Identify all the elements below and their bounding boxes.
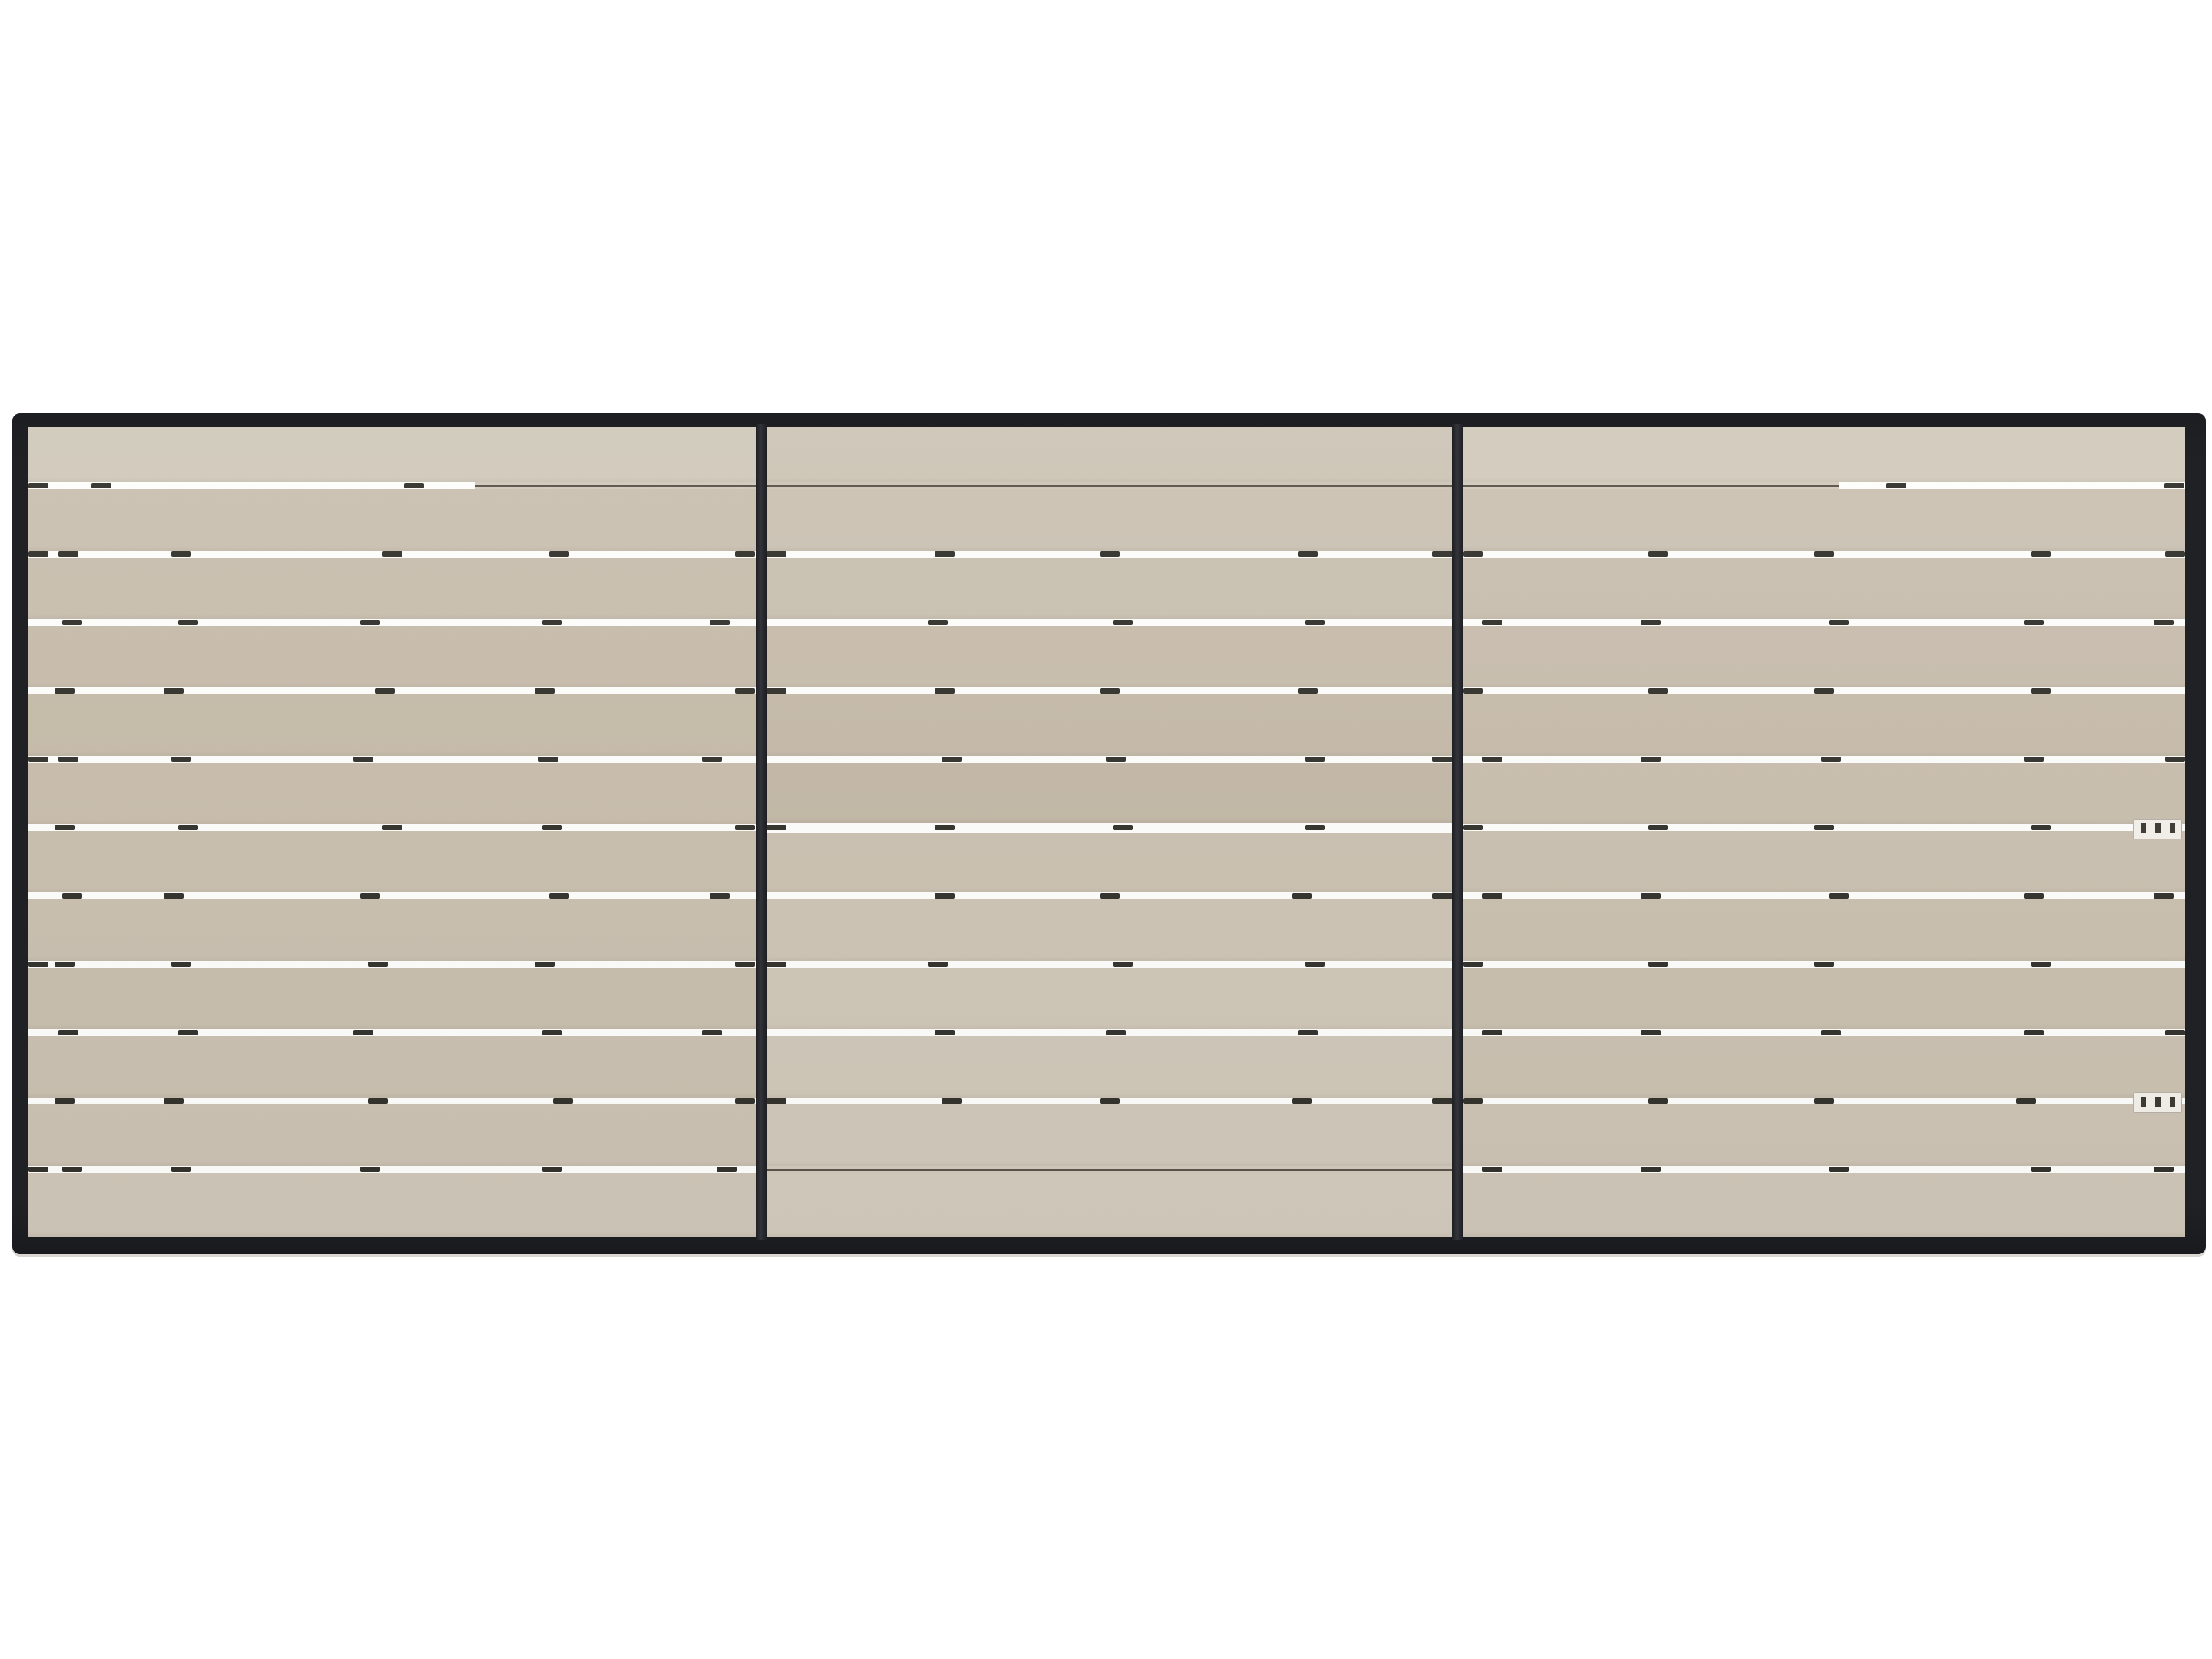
slat-clip — [1648, 551, 1668, 557]
slat-clip — [171, 551, 191, 557]
slat-clip — [58, 757, 78, 762]
slat — [1463, 694, 2185, 756]
slat-clip — [717, 1167, 737, 1172]
slat-clip — [1292, 1098, 1312, 1104]
slat-clip — [58, 551, 78, 557]
slat-clip — [2024, 620, 2044, 625]
table-panel-left — [28, 427, 756, 1237]
slat-clip — [767, 962, 786, 967]
slat — [1463, 626, 2185, 687]
slat-clip — [735, 825, 755, 830]
slat-clip — [1482, 1030, 1502, 1035]
slat-clip — [1463, 688, 1483, 694]
slat-clip — [1463, 1098, 1483, 1104]
slat-clip — [767, 825, 786, 830]
slat-clip — [1298, 1030, 1318, 1035]
seam-line — [1463, 485, 1839, 487]
slat-clip — [535, 688, 555, 694]
slat — [767, 833, 1452, 892]
slat-seam — [1463, 482, 1839, 489]
slat-clip — [178, 1030, 198, 1035]
slat-clip — [55, 1098, 75, 1104]
latch-mark — [2155, 1097, 2161, 1107]
slat-clip — [1648, 825, 1668, 830]
slat — [1463, 968, 2185, 1029]
slat-clip — [1305, 757, 1325, 762]
slat-clip — [710, 893, 730, 899]
slat-clip — [1482, 620, 1502, 625]
slat-clip — [2024, 893, 2044, 899]
slat-clip — [1463, 551, 1483, 557]
slat-clip — [2024, 757, 2044, 762]
slat-clip — [178, 620, 198, 625]
slat — [28, 694, 756, 756]
slat-seam — [767, 482, 1452, 489]
slat-clip — [62, 893, 82, 899]
slat-clip — [375, 688, 395, 694]
slat-clip — [1292, 893, 1312, 899]
slat-clip — [55, 688, 75, 694]
slat — [1463, 831, 2185, 892]
slat-clip — [2165, 1030, 2185, 1035]
slat — [28, 626, 756, 687]
slat — [1463, 1036, 2185, 1098]
slat-clip — [1482, 757, 1502, 762]
slat-clip — [353, 1030, 373, 1035]
slat-clip — [1648, 688, 1668, 694]
slat-clip — [55, 825, 75, 830]
slat-clip — [1648, 962, 1668, 967]
slat-clip — [1305, 962, 1325, 967]
slat-clip — [1482, 893, 1502, 899]
slat-clip — [928, 962, 948, 967]
seam-line — [475, 485, 756, 487]
slat-clip — [702, 1030, 722, 1035]
latch-mark — [2155, 823, 2161, 833]
slat-clip — [1648, 1098, 1668, 1104]
slat — [28, 763, 756, 824]
slat-clip — [28, 962, 48, 967]
slat-clip — [171, 962, 191, 967]
slat-clip — [1432, 551, 1452, 557]
table-panel-right — [1463, 427, 2185, 1237]
slat-clip — [178, 825, 198, 830]
slat — [28, 489, 756, 551]
slat — [767, 558, 1452, 619]
slat-clip — [935, 688, 955, 694]
slat — [28, 427, 756, 482]
slat-clip — [1482, 1167, 1502, 1172]
latch-mark — [2170, 1097, 2175, 1107]
table-panel-middle — [767, 427, 1452, 1237]
slat-clip — [935, 893, 955, 899]
slat-clip — [1641, 1167, 1661, 1172]
slat-clip — [2154, 893, 2174, 899]
slat-clip — [2154, 1167, 2174, 1172]
slat-clip — [710, 620, 730, 625]
slat-clip — [1432, 893, 1452, 899]
slat-clip — [549, 551, 569, 557]
slat-clip — [2164, 483, 2184, 488]
slat — [767, 1036, 1452, 1098]
slat-clip — [368, 1098, 388, 1104]
slat — [28, 968, 756, 1029]
slat-clip — [1829, 1167, 1849, 1172]
slat — [1463, 489, 2185, 551]
slat-clip — [91, 483, 111, 488]
slat-clip — [28, 1167, 48, 1172]
slat-clip — [767, 551, 786, 557]
slat-clip — [928, 620, 948, 625]
slat — [767, 1173, 1452, 1237]
slat-clip — [62, 1167, 82, 1172]
slat — [28, 558, 756, 619]
slat-clip — [2016, 1098, 2036, 1104]
slat-clip — [538, 757, 558, 762]
slat-clip — [542, 825, 562, 830]
slat — [767, 489, 1452, 551]
slat-clip — [553, 1098, 573, 1104]
slat — [1463, 763, 2185, 824]
slat-clip — [542, 1167, 562, 1172]
slat-clip — [353, 757, 373, 762]
slat-clip — [1821, 1030, 1841, 1035]
slat-clip — [1814, 1098, 1834, 1104]
slat-clip — [1113, 620, 1133, 625]
slat-clip — [735, 688, 755, 694]
slat-clip — [1432, 757, 1452, 762]
slat-clip — [1641, 1030, 1661, 1035]
slat — [767, 427, 1452, 482]
slat-clip — [28, 551, 48, 557]
slat-clip — [171, 757, 191, 762]
slat — [767, 968, 1452, 1029]
slat-clip — [2024, 1030, 2044, 1035]
slat-clip — [28, 757, 48, 762]
slat-clip — [1106, 1030, 1126, 1035]
slat-clip — [767, 1098, 786, 1104]
slat-clip — [1463, 825, 1483, 830]
slat — [28, 1104, 756, 1166]
slat — [28, 831, 756, 892]
slat — [28, 1173, 756, 1237]
slat-clip — [2165, 757, 2185, 762]
slat-clip — [1298, 688, 1318, 694]
slat-clip — [1432, 1098, 1452, 1104]
slat-clip — [542, 620, 562, 625]
slat-clip — [1821, 757, 1841, 762]
slat-clip — [1305, 620, 1325, 625]
product-photo-canvas — [0, 0, 2212, 1659]
slat-clip — [735, 962, 755, 967]
slat-clip — [164, 1098, 184, 1104]
slat-clip — [2031, 1167, 2051, 1172]
slat-clip — [702, 757, 722, 762]
slat-clip — [1814, 962, 1834, 967]
slat-clip — [1100, 1098, 1120, 1104]
slat-clip — [735, 551, 755, 557]
slat-clip — [360, 620, 380, 625]
slat-clip — [360, 893, 380, 899]
slat-clip — [2031, 688, 2051, 694]
slat — [1463, 1173, 2185, 1237]
slat — [1463, 558, 2185, 619]
slat-clip — [549, 893, 569, 899]
slat-clip — [935, 551, 955, 557]
table-frame — [12, 413, 2206, 1254]
slat — [767, 694, 1452, 756]
slat-clip — [942, 1098, 962, 1104]
slat-clip — [58, 1030, 78, 1035]
slat — [767, 1104, 1452, 1166]
slat — [1463, 899, 2185, 961]
slat — [28, 1036, 756, 1098]
slat-clip — [542, 1030, 562, 1035]
slat — [28, 899, 756, 961]
slat-clip — [1113, 825, 1133, 830]
slat — [1463, 427, 2185, 482]
slat-clip — [55, 962, 75, 967]
slat-clip — [2031, 551, 2051, 557]
slat-clip — [935, 1030, 955, 1035]
panel-divider-2 — [1452, 424, 1463, 1240]
latch-mark — [2141, 1097, 2146, 1107]
slat-clip — [404, 483, 424, 488]
slat-clip — [735, 1098, 755, 1104]
slat-clip — [1113, 962, 1133, 967]
slat-clip — [1463, 962, 1483, 967]
panel-divider-1 — [756, 424, 767, 1240]
latch-mark — [2141, 823, 2146, 833]
slat-clip — [171, 1167, 191, 1172]
slat-clip — [1641, 757, 1661, 762]
slat-seam — [767, 1166, 1452, 1173]
slat-clip — [1886, 483, 1906, 488]
slat-clip — [1100, 893, 1120, 899]
slat — [767, 626, 1452, 687]
slat-seam — [475, 482, 756, 489]
slat-clip — [942, 757, 962, 762]
slat-clip — [767, 688, 786, 694]
slat-clip — [1814, 688, 1834, 694]
slat-clip — [1641, 620, 1661, 625]
slat-clip — [1814, 825, 1834, 830]
slat-clip — [1106, 757, 1126, 762]
slat-clip — [535, 962, 555, 967]
slat — [767, 899, 1452, 961]
slat-clip — [382, 825, 402, 830]
slat — [767, 763, 1452, 823]
slat-clip — [368, 962, 388, 967]
slat-clip — [1829, 620, 1849, 625]
latch-mark — [2170, 823, 2175, 833]
slat-clip — [1100, 688, 1120, 694]
slat-clip — [62, 620, 82, 625]
seam-line — [767, 1169, 1452, 1171]
slat-clip — [1829, 893, 1849, 899]
extension-latch — [2133, 1092, 2182, 1113]
slat-clip — [1814, 551, 1834, 557]
slat-clip — [2154, 620, 2174, 625]
slat-clip — [1298, 551, 1318, 557]
seam-line — [767, 485, 1452, 487]
slat — [1463, 1104, 2185, 1166]
slat-clip — [360, 1167, 380, 1172]
slat-clip — [164, 688, 184, 694]
slat-clip — [1305, 825, 1325, 830]
slat-clip — [2165, 551, 2185, 557]
slat-clip — [164, 893, 184, 899]
slat-clip — [28, 483, 48, 488]
slat-clip — [935, 825, 955, 830]
slat-clip — [1100, 551, 1120, 557]
slat-clip — [2031, 962, 2051, 967]
extension-latch — [2133, 819, 2182, 839]
slat-clip — [382, 551, 402, 557]
slat-clip — [2031, 825, 2051, 830]
slat-clip — [1641, 893, 1661, 899]
